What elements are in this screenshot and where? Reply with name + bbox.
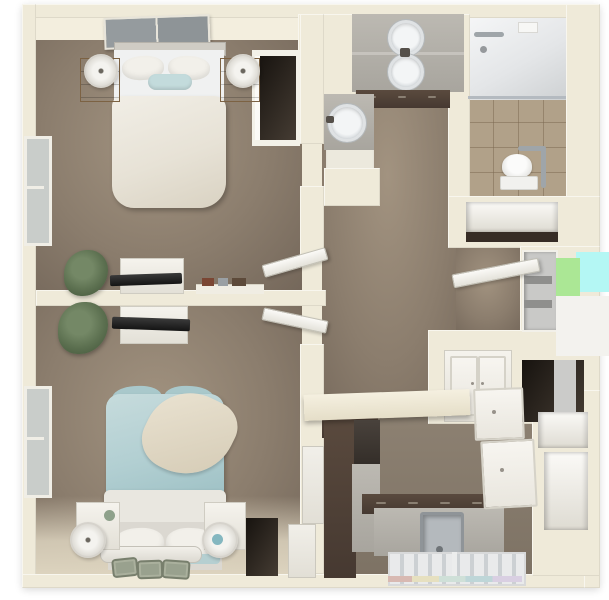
table-lamp-left [84,54,118,88]
pantry-shelf-lower [544,452,588,530]
shower-drain [480,46,487,53]
teal-accent-pillow [148,74,192,90]
upper-cabinet-dark [354,420,380,466]
kitchen-cabinet-door-upper [473,387,525,441]
render-artifact-pale [556,296,609,356]
kitchen-cabinet-door-lower [480,439,537,510]
decor-item [232,278,246,286]
closet-dark-interior [258,56,296,140]
hall-west-wall-upper [300,14,324,144]
niche-shelf-band [524,300,552,308]
floorplan-render [0,0,609,600]
grab-bar-vertical [541,146,546,188]
vanity-faucet [400,48,410,57]
vanity-nook-wall [324,168,380,206]
appliance-reflection [388,576,522,582]
cabinet-handle [376,502,386,504]
cabinet-handle [428,96,436,98]
cabinet-handle [398,96,406,98]
render-artifact-green [556,258,580,296]
bedroom1-window [24,136,52,246]
cabinet-handle [440,502,450,504]
pantry-shelf-upper [538,412,588,448]
bed1-duvet [112,96,226,208]
window-mullion [26,186,44,189]
bedroom2-corner-door [288,524,316,578]
cabinet-handle [408,502,418,504]
linen-shelf [466,202,558,232]
cabinet-handle [472,502,482,504]
floor-mat [161,559,190,580]
toilet-tank [500,176,538,190]
shower-bar [474,32,504,37]
bedroom2-window [24,386,52,498]
linen-shelf-shadow [466,232,558,242]
drum-lamp-left [70,522,106,558]
render-artifact-cyan [576,252,609,292]
bathroom-east-wall [566,4,600,198]
outer-wall-left [22,4,36,588]
decor-item [202,278,214,286]
floor-mat [137,560,164,580]
cabinet-knob [481,382,484,385]
single-vanity-sink [328,104,366,142]
cabinet-knob [471,382,474,385]
nightstand-decor-sage [104,510,115,521]
shower-glass-edge [468,96,566,99]
single-vanity-faucet [326,116,334,123]
niche-shelf-band [524,276,552,284]
hallway-floor-east [456,246,524,332]
cabinet-knob [492,410,496,414]
window-mullion [26,437,44,440]
nightstand-decor-teal [212,534,223,545]
bedroom2-corner-doorway [246,518,278,576]
table-lamp-right [226,54,260,88]
cabinet-knob [500,468,504,472]
shower-vent [518,22,538,33]
hall-door-panel [302,446,324,524]
decor-item [218,278,228,286]
floor-mat [111,557,139,579]
walk-in-shower [468,18,566,100]
vanity-sink [388,54,424,90]
toilet-bowl [502,154,532,178]
